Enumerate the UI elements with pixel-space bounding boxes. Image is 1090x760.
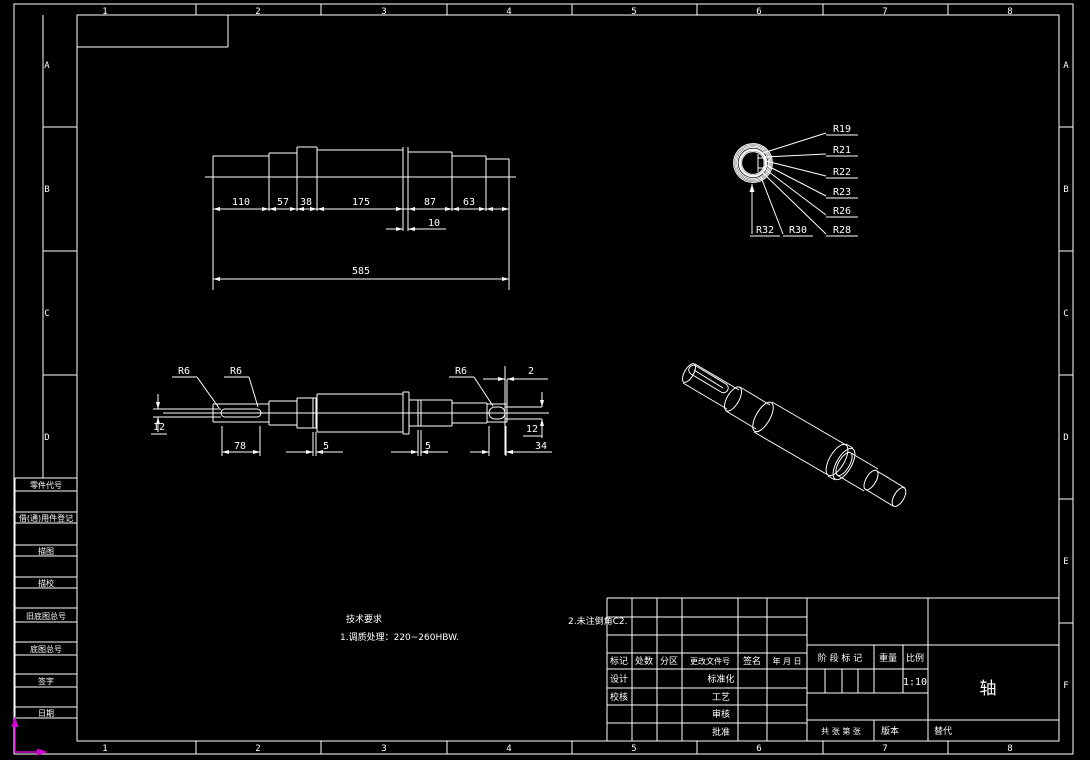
title-block-text: 标记 处数 分区 更改文件号 签名 年 月 日 设计 校核 标准化 工艺 审核 … xyxy=(610,652,997,738)
dim-2: 2 xyxy=(528,366,534,377)
tb-standardization: 标准化 xyxy=(707,673,734,685)
tb-zone: 分区 xyxy=(660,656,678,667)
side-view-linework xyxy=(151,366,552,456)
tb-sign: 签名 xyxy=(743,655,761,667)
tb-design: 设计 xyxy=(610,673,628,685)
technical-requirements: 技术要求 1.调质处理：220~260HBW. 2.未注倒角C2. xyxy=(340,613,627,643)
zone-left-a: A xyxy=(44,61,50,71)
ucs-icon xyxy=(12,716,49,756)
sidebar-borrowed-parts: 借(通)用件登记 xyxy=(19,513,73,523)
dim-12-left: 12 xyxy=(153,422,165,433)
tb-review: 审核 xyxy=(712,708,730,720)
radius-r30: R30 xyxy=(789,225,807,236)
zone-right-f: F xyxy=(1063,681,1068,691)
radius-r21: R21 xyxy=(833,145,851,156)
sidebar-signature: 签字 xyxy=(38,676,54,686)
dim-57: 57 xyxy=(277,197,289,208)
sidebar-date: 日期 xyxy=(38,709,54,718)
tb-mark: 标记 xyxy=(610,655,628,667)
tb-stage-mark: 阶 段 标 记 xyxy=(818,652,863,664)
tech-req-title: 技术要求 xyxy=(346,613,382,625)
dim-175: 175 xyxy=(352,197,370,208)
zone-bot-2: 2 xyxy=(255,744,260,754)
zone-bot-6: 6 xyxy=(756,744,761,754)
zone-right-a: A xyxy=(1063,61,1069,71)
dim-585: 585 xyxy=(352,266,370,277)
dim-12-right: 12 xyxy=(526,424,538,435)
zone-bot-5: 5 xyxy=(631,744,636,754)
isometric-view xyxy=(680,362,909,509)
tb-weight: 重量 xyxy=(879,652,897,664)
zone-bot-3: 3 xyxy=(381,744,386,754)
tb-count: 处数 xyxy=(635,655,653,667)
tb-sheet-count: 共 张 第 张 xyxy=(821,726,861,736)
zone-labels: 1 2 3 4 5 6 7 8 1 2 3 4 5 6 7 8 A B C D … xyxy=(44,7,1069,754)
tb-check: 校核 xyxy=(610,691,628,703)
zone-bot-7: 7 xyxy=(882,744,887,754)
zone-top-3: 3 xyxy=(381,7,386,17)
zone-right-e: E xyxy=(1063,557,1068,567)
dim-110: 110 xyxy=(232,197,250,208)
radius-r22: R22 xyxy=(833,167,851,178)
sidebar-tracing: 描图 xyxy=(38,546,54,556)
fillet-r6-2: R6 xyxy=(230,366,242,377)
zone-top-5: 5 xyxy=(631,7,636,17)
fillet-r6-3: R6 xyxy=(455,366,467,377)
tb-version: 版本 xyxy=(881,725,899,737)
zone-right-b: B xyxy=(1063,185,1068,195)
cad-canvas: 1 2 3 4 5 6 7 8 1 2 3 4 5 6 7 8 A B C D … xyxy=(0,0,1090,760)
zone-left-c: C xyxy=(44,309,49,319)
sidebar-tracing-check: 描校 xyxy=(38,578,54,588)
zone-bot-4: 4 xyxy=(506,744,511,754)
tb-change-doc-no: 更改文件号 xyxy=(690,656,730,666)
dim-34: 34 xyxy=(535,441,547,452)
dim-5-right: 5 xyxy=(425,441,431,452)
dim-87: 87 xyxy=(424,197,436,208)
zone-top-1: 1 xyxy=(102,7,107,17)
tb-scale-value: 1:10 xyxy=(903,677,927,688)
radius-r19: R19 xyxy=(833,124,851,135)
radius-r28: R28 xyxy=(833,225,851,236)
zone-top-2: 2 xyxy=(255,7,260,17)
tb-approve: 批准 xyxy=(712,726,730,738)
tech-req-item1: 1.调质处理：220~260HBW. xyxy=(340,631,459,643)
fillet-r6-1: R6 xyxy=(178,366,190,377)
tb-process: 工艺 xyxy=(712,692,730,703)
dim-63: 63 xyxy=(463,197,475,208)
tb-part-name: 轴 xyxy=(980,679,997,699)
zone-bot-8: 8 xyxy=(1007,744,1012,754)
sidebar-labels: 零件代号 借(通)用件登记 描图 描校 旧底图总号 底图总号 签字 日期 xyxy=(19,480,73,718)
side-view-arrows xyxy=(156,377,544,454)
dim-78: 78 xyxy=(234,441,246,452)
zone-bot-1: 1 xyxy=(102,744,107,754)
title-block-linework xyxy=(607,598,1059,741)
dim-5-left: 5 xyxy=(323,441,329,452)
zone-top-8: 8 xyxy=(1007,7,1012,17)
dim-38: 38 xyxy=(300,197,312,208)
zone-right-d: D xyxy=(1063,433,1068,443)
radius-r23: R23 xyxy=(833,187,851,198)
zone-left-b: B xyxy=(44,185,49,195)
drawing-sheet: 1 2 3 4 5 6 7 8 1 2 3 4 5 6 7 8 A B C D … xyxy=(0,0,1090,760)
sidebar-base-no: 底图总号 xyxy=(30,644,62,654)
zone-top-6: 6 xyxy=(756,7,761,17)
tb-replace: 替代 xyxy=(934,725,952,737)
tb-scale: 比例 xyxy=(906,652,924,664)
zone-right-c: C xyxy=(1063,309,1068,319)
zone-top-4: 4 xyxy=(506,7,511,17)
sidebar-part-code: 零件代号 xyxy=(30,480,62,490)
zone-left-d: D xyxy=(44,433,49,443)
dim-10: 10 xyxy=(428,218,440,229)
tb-date: 年 月 日 xyxy=(772,656,801,666)
radius-r26: R26 xyxy=(833,206,851,217)
radius-r32: R32 xyxy=(756,225,774,236)
zone-top-7: 7 xyxy=(882,7,887,17)
sidebar-old-base-no: 旧底图总号 xyxy=(26,611,66,621)
